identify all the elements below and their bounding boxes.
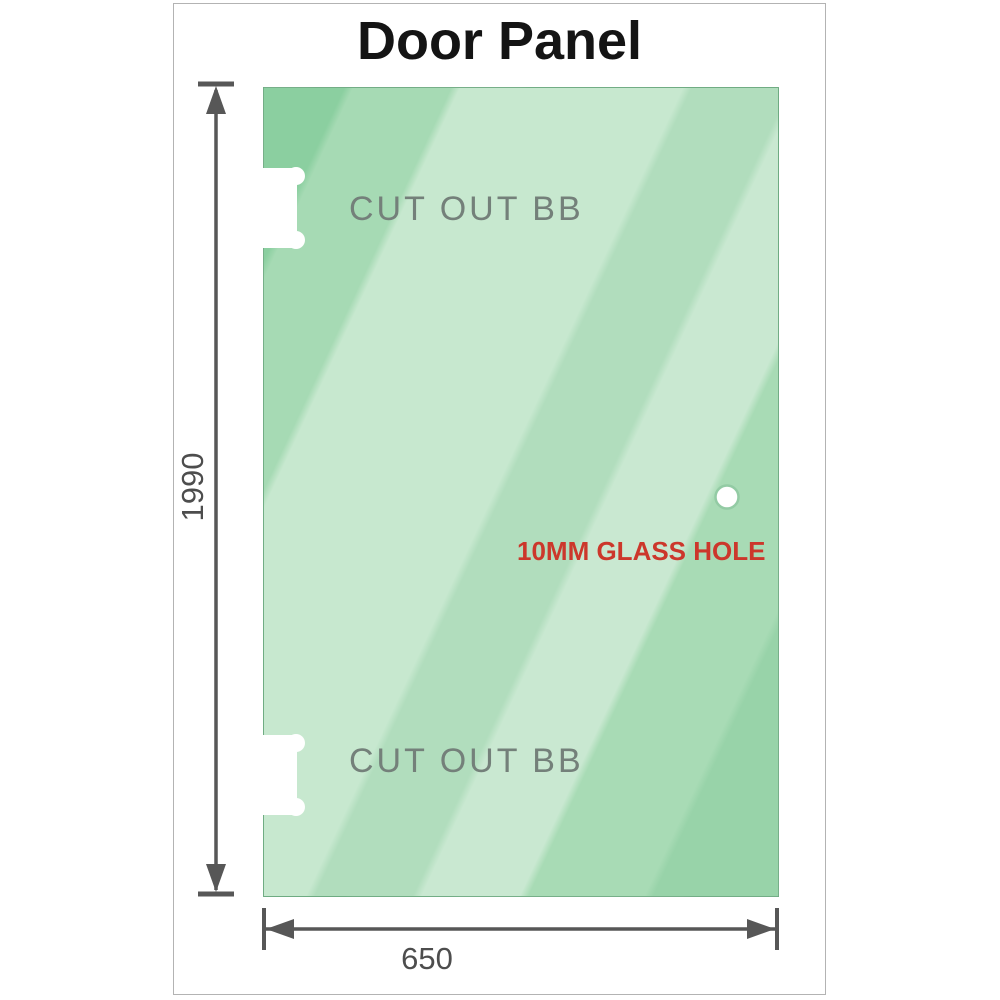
door-panel-drawing: Door Panel bbox=[0, 0, 1000, 1000]
horizontal-dimension-arrow bbox=[264, 908, 777, 950]
glass-hole bbox=[716, 486, 739, 509]
cutout-shape-top bbox=[260, 167, 305, 249]
dimension-and-cutout-graphics bbox=[0, 0, 1000, 1000]
cutout-bottom-label: CUT OUT BB bbox=[349, 744, 584, 778]
glass-hole-label: 10MM GLASS HOLE bbox=[517, 538, 765, 564]
cutout-top-label: CUT OUT BB bbox=[349, 192, 584, 226]
cutout-shape-bottom bbox=[260, 734, 305, 816]
width-dimension-value: 650 bbox=[367, 942, 487, 976]
height-dimension-value: 1990 bbox=[175, 427, 211, 547]
